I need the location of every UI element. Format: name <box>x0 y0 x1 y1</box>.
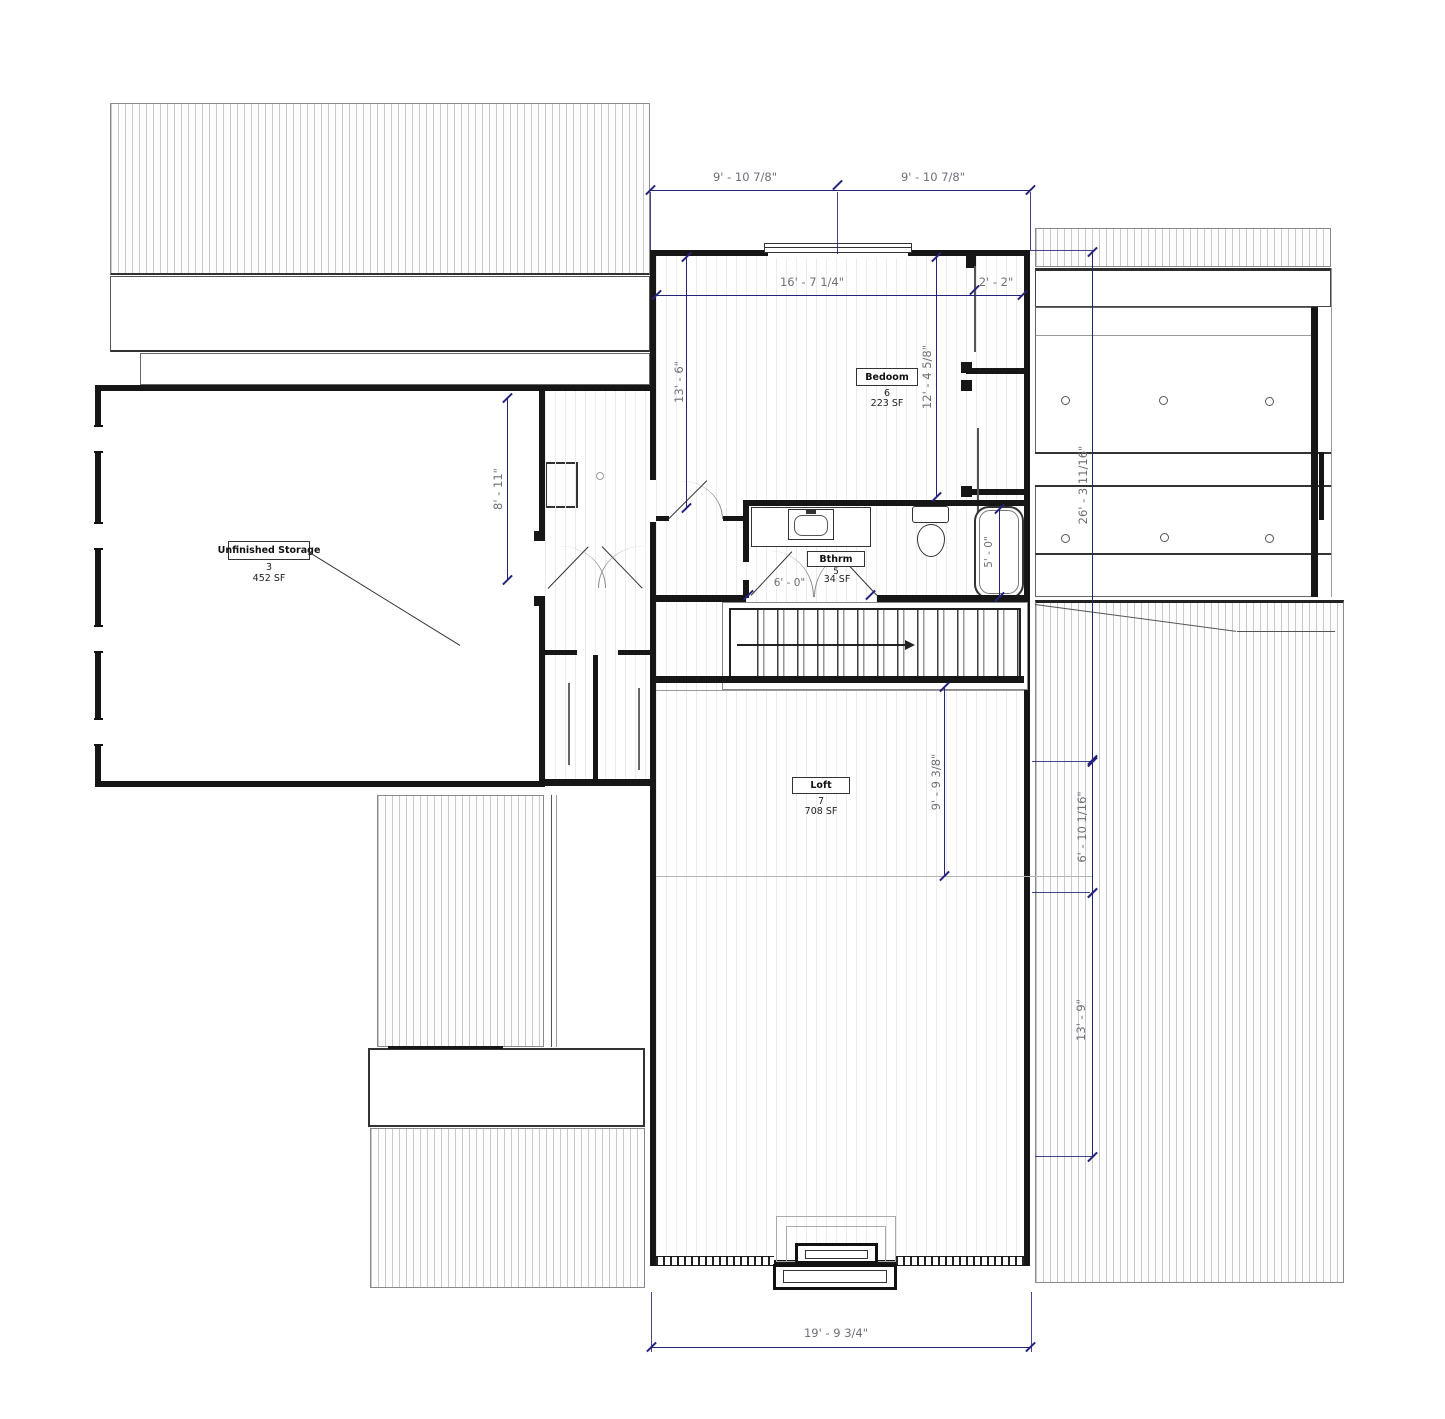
roof-hatch-right-top <box>1035 228 1331 267</box>
hall-bottom-wall <box>545 779 650 786</box>
bath-south-wall <box>656 595 746 602</box>
dim-bath-width-text: 6' - 0" <box>762 577 817 589</box>
storage-window <box>94 625 103 653</box>
dim-bedroom-right-line <box>936 257 937 497</box>
deck-line <box>1036 335 1315 336</box>
dim-bedroom-left-text: 13' - 6" <box>672 332 686 432</box>
dim-tick <box>832 180 843 191</box>
stair-direction-arrow <box>905 640 915 650</box>
south-wall-hatch <box>896 1256 1024 1266</box>
firebox-slot <box>805 1250 868 1259</box>
roof-hatch-bottom-left-upper <box>377 795 544 1047</box>
stair-south-wall <box>656 676 1024 683</box>
faucet <box>806 509 816 514</box>
wall-post <box>961 362 972 373</box>
deck-post <box>1160 533 1169 542</box>
deck-line <box>1035 553 1331 555</box>
room-area: 223 SF <box>856 398 918 409</box>
roof-hatch-top-left <box>110 103 650 275</box>
room-area: 452 SF <box>228 573 310 584</box>
dim-right-overall-text: 26' - 3 11/16" <box>1076 435 1090 535</box>
bath-west-wall <box>743 506 749 562</box>
chimney-slot <box>783 1270 887 1283</box>
dim-right-overall-line <box>1092 252 1093 760</box>
lower-roof-strip <box>551 795 645 1047</box>
dim-roof-lower-text: 13' - 9" <box>1074 970 1088 1070</box>
dim-roof-upper-text: 6' - 10 1/16" <box>1075 777 1089 877</box>
deck-post <box>1265 534 1274 543</box>
storage-room <box>95 385 545 787</box>
deck-post <box>1061 396 1070 405</box>
dim-bottom-text: 19' - 9 3/4" <box>776 1326 896 1340</box>
dim-bedroom-right-text: 12' - 4 5/8" <box>920 327 934 427</box>
deck-east-handle <box>1319 452 1324 520</box>
wall-post <box>961 486 972 497</box>
dim-roof-upper-line <box>1092 762 1093 893</box>
dormer-band-left <box>368 1048 645 1127</box>
floor-plan: Unfinished Storage 3 452 SF <box>0 0 1445 1419</box>
room-area: 34 SF <box>812 574 862 585</box>
dim-roof-lower-line <box>1092 893 1093 1157</box>
hall-mid-wall <box>545 650 577 655</box>
deck-post <box>1159 396 1168 405</box>
dim-bottom-line <box>651 1347 1031 1348</box>
wall-post <box>961 380 972 391</box>
deck-post <box>1061 534 1070 543</box>
dim-top-left-text: 9' - 10 7/8" <box>685 170 805 184</box>
room-label-bathroom: Bthrm <box>807 551 865 567</box>
pocket-door <box>638 688 640 770</box>
dim-bedroom-width-line <box>656 295 1023 296</box>
extension-line <box>1030 250 1094 251</box>
bath-south-wall <box>877 595 1024 602</box>
extension-line <box>1030 192 1031 250</box>
wall-stub <box>723 516 745 521</box>
hall-top-wall <box>545 385 650 391</box>
room-label-bedroom: Bedoom <box>856 368 918 386</box>
storage-window <box>94 522 103 550</box>
storage-window <box>94 718 103 746</box>
room-name: Bedoom <box>865 372 908 383</box>
extension-line <box>651 1292 652 1352</box>
toilet-tank <box>912 506 949 523</box>
room-name: Bthrm <box>819 554 852 565</box>
dim-storage-east-line <box>507 398 508 580</box>
roof-break-line <box>656 876 1092 877</box>
roof-hatch-right-main <box>1035 600 1344 1283</box>
eave-band-top-left <box>110 276 650 352</box>
extension-line <box>1032 761 1090 762</box>
room-label-loft: Loft <box>792 777 850 794</box>
extension-line <box>650 192 651 250</box>
sink-bowl <box>794 515 828 536</box>
roof-edge-line <box>1237 631 1335 632</box>
extension-line <box>837 192 838 254</box>
room-number: 3 <box>228 562 310 573</box>
dim-tub-text: 5' - 0" <box>983 502 995 602</box>
window-mullion-line <box>764 247 912 248</box>
dim-loft-depth-text: 9' - 9 3/8" <box>929 732 943 832</box>
lower-roof-strip-line <box>556 795 557 1047</box>
closet-wall <box>966 489 1024 495</box>
dim-bedroom-left-line <box>686 257 687 508</box>
closet-wall <box>966 368 1024 374</box>
room-name: Unfinished Storage <box>218 545 321 556</box>
deck-outer-line <box>1331 268 1332 597</box>
closet-divider-wall <box>593 655 598 779</box>
south-wall-hatch <box>656 1256 774 1266</box>
dim-closet-depth-text: 2' - 2" <box>966 275 1026 289</box>
deck-post <box>1265 397 1274 406</box>
dim-tub-line <box>999 509 1000 597</box>
eave-band-right <box>1035 268 1331 307</box>
extension-line <box>1035 1156 1092 1157</box>
dim-top-right-text: 9' - 10 7/8" <box>873 170 993 184</box>
hall-mid-wall <box>618 650 650 655</box>
building-floor <box>656 256 1024 1260</box>
room-label-storage: Unfinished Storage <box>228 541 310 560</box>
dormer-band-accent <box>388 1046 503 1049</box>
stair-south-line <box>656 690 1024 691</box>
dim-loft-depth-line <box>944 687 945 876</box>
storage-window <box>94 425 103 453</box>
extension-line <box>1032 892 1090 893</box>
pocket-door <box>568 683 570 765</box>
dim-storage-east-text: 8' - 11" <box>491 439 505 539</box>
window-frame <box>764 243 912 253</box>
room-name: Loft <box>810 780 831 791</box>
roof-hatch-bottom-left-lower <box>370 1128 645 1288</box>
loft-door-opening <box>647 480 656 522</box>
stair-direction-line <box>737 644 907 646</box>
dim-top-line <box>650 190 1031 191</box>
room-area: 708 SF <box>792 806 850 817</box>
deck-east-wall <box>1311 307 1318 597</box>
eave-band-top-left-2 <box>140 353 650 385</box>
dim-bedroom-width-text: 16' - 7 1/4" <box>752 275 872 289</box>
